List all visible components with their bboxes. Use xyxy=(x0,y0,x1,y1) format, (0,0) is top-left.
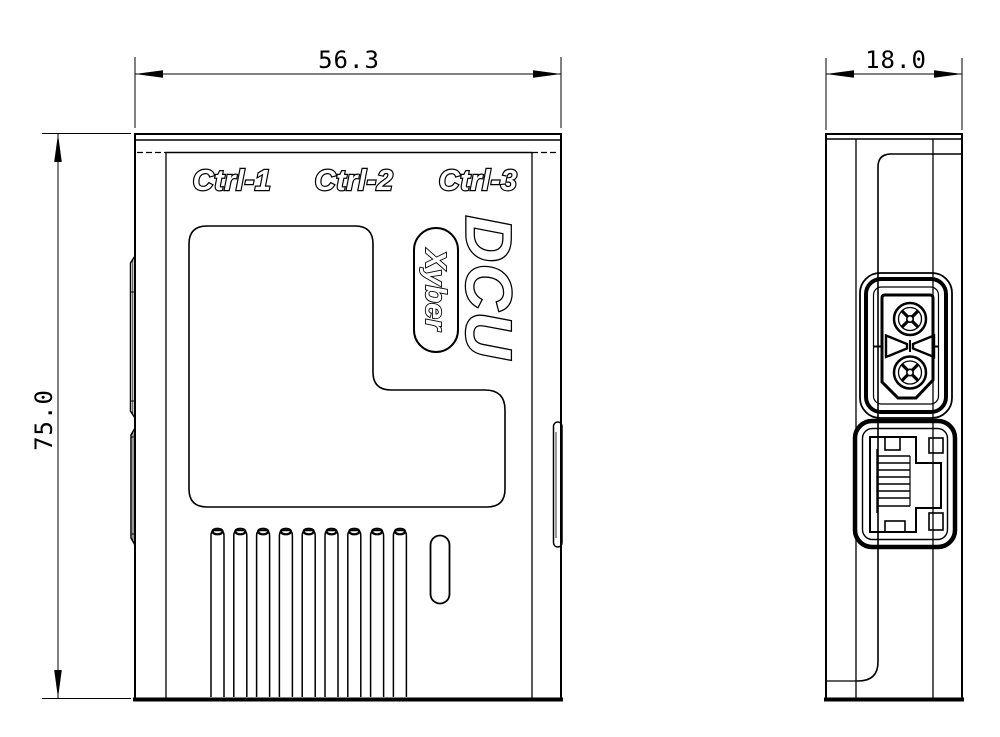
width-dim-text: 56.3 xyxy=(318,46,380,74)
arrowhead-left xyxy=(826,70,854,78)
depth-dim-text: 18.0 xyxy=(865,46,927,74)
vent-slot xyxy=(393,529,406,697)
dimension-height: 75.0 xyxy=(30,134,131,699)
arrowhead-up xyxy=(54,134,62,162)
dimension-width: 56.3 xyxy=(135,46,561,128)
vent-slot xyxy=(371,529,384,697)
arrowhead-left xyxy=(135,70,163,78)
ethernet-pins xyxy=(877,449,910,513)
vent-slot xyxy=(279,529,292,697)
vent-slots xyxy=(211,529,406,697)
brand-text: Xyber xyxy=(419,248,451,332)
dcu-logo: DCU xyxy=(453,216,525,361)
arrowhead-right xyxy=(934,70,962,78)
vent-slot xyxy=(302,529,315,697)
front-view: Ctrl-1 Ctrl-2 Ctrl-3 Xyber DCU xyxy=(30,46,563,700)
vent-slot xyxy=(257,529,270,697)
port-label-2: Ctrl-2 xyxy=(315,165,394,197)
ethernet-detail-rect xyxy=(885,437,900,450)
arrowhead-down xyxy=(54,670,62,698)
port-label-1: Ctrl-1 xyxy=(193,165,272,197)
drawing-page: Ctrl-1 Ctrl-2 Ctrl-3 Xyber DCU xyxy=(0,0,1000,737)
terminal-circle-top xyxy=(894,303,926,335)
height-dim-text: 75.0 xyxy=(30,389,58,451)
terminal-circle-bottom xyxy=(894,357,926,389)
vent-slot xyxy=(211,529,224,697)
drawing-canvas: Ctrl-1 Ctrl-2 Ctrl-3 Xyber DCU xyxy=(0,0,1000,737)
power-connector xyxy=(860,273,952,418)
vent-slot xyxy=(348,529,361,697)
xyber-badge: Xyber xyxy=(414,228,458,352)
ethernet-detail-rect xyxy=(885,521,905,532)
side-view: 18.0 xyxy=(824,46,964,700)
oval-slot xyxy=(431,536,450,604)
dimension-depth: 18.0 xyxy=(826,46,962,130)
arrowhead-right xyxy=(533,70,561,78)
port-label-3: Ctrl-3 xyxy=(439,165,518,197)
ethernet-detail-rect xyxy=(929,513,943,530)
ethernet-detail-rect xyxy=(929,438,943,453)
vent-slot xyxy=(325,529,338,697)
ethernet-port xyxy=(855,421,955,547)
vent-slot xyxy=(234,529,247,697)
